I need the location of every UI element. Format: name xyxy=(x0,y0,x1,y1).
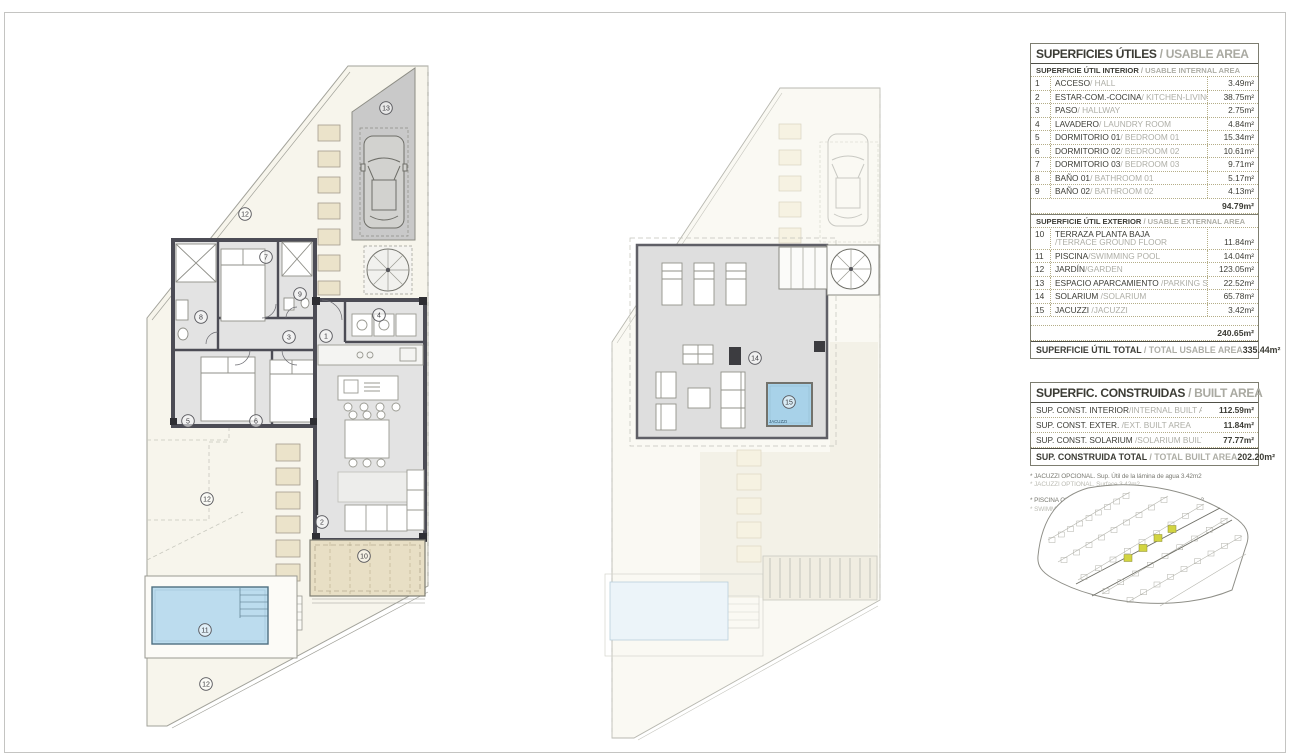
room-marker-number: 9 xyxy=(298,292,302,299)
table-row: 3PASO/ HALLWAY2.75m² xyxy=(1031,104,1258,118)
site-plot-highlighted xyxy=(1139,545,1147,552)
room-marker-number: 6 xyxy=(254,419,258,426)
swimming-pool xyxy=(145,576,297,658)
room-marker-number: 15 xyxy=(785,400,793,407)
site-location-map xyxy=(1028,484,1264,616)
room-marker-number: 3 xyxy=(287,335,291,342)
exterior-section-header: SUPERFICIE ÚTIL EXTERIOR / USABLE EXTERN… xyxy=(1031,214,1258,228)
room-marker-number: 8 xyxy=(199,315,203,322)
sun-loungers xyxy=(662,263,746,305)
table-row: 8BAÑO 01/ BATHROOM 015.17m² xyxy=(1031,172,1258,186)
footnote-line: * JACUZZI OPCIONAL. Sup. Útil de la lámi… xyxy=(1030,473,1259,481)
site-plot-highlighted xyxy=(1154,535,1162,542)
room-marker-number: 12 xyxy=(202,682,210,689)
table-row: SUP. CONST. EXTER. /EXT. BUILT AREA11.84… xyxy=(1031,418,1258,433)
room-marker-number: 12 xyxy=(241,212,249,219)
room-marker-number: 14 xyxy=(751,356,759,363)
spiral-stair-roof xyxy=(831,249,871,289)
built-total-value: 202.20m² xyxy=(1237,451,1279,463)
room-marker-number: 5 xyxy=(186,419,190,426)
table-row: 10TERRAZA PLANTA BAJA/TERRACE GROUND FLO… xyxy=(1031,228,1258,250)
room-marker-number: 13 xyxy=(382,106,390,113)
room-marker-number: 4 xyxy=(377,313,381,320)
room-marker-number: 11 xyxy=(201,628,208,635)
site-boundary xyxy=(1038,485,1248,604)
built-table-title: SUPERFIC. CONSTRUIDAS / BUILT AREA xyxy=(1031,383,1258,403)
table-row: 14SOLARIUM /SOLARIUM65.78m² xyxy=(1031,290,1258,304)
site-plot-highlighted xyxy=(1124,555,1132,562)
room-marker-number: 1 xyxy=(324,334,328,341)
table-row: 7DORMITORIO 03/ BEDROOM 039.71m² xyxy=(1031,158,1258,172)
interior-subtotal: 94.79m² xyxy=(1031,199,1258,214)
room-marker-number: 2 xyxy=(320,520,324,527)
table-row: 13ESPACIO APARCAMIENTO /PARKING SPACE22.… xyxy=(1031,277,1258,291)
table-row: 15JACUZZI /JACUZZI3.42m² xyxy=(1031,304,1258,318)
table-row: 12JARDÍN/GARDEN123.05m² xyxy=(1031,263,1258,277)
ground-floor-plan: 123456789101112121213 xyxy=(130,58,440,748)
room-marker-number: 7 xyxy=(264,255,268,262)
table-row: 5DORMITORIO 01/ BEDROOM 0115.34m² xyxy=(1031,131,1258,145)
pergola-roof xyxy=(763,556,877,600)
table-row: 6DORMITORIO 02/ BEDROOM 0210.61m² xyxy=(1031,145,1258,159)
solarium-floor-plan: JACUZZI 1415 xyxy=(595,80,890,745)
table-row: 2ESTAR-COM.-COCINA/ KITCHEN-LIVING38.75m… xyxy=(1031,91,1258,105)
table-row: 4LAVADERO/ LAUNDRY ROOM4.84m² xyxy=(1031,118,1258,132)
jacuzzi-label: JACUZZI xyxy=(769,419,787,424)
site-plot-highlighted xyxy=(1168,526,1176,533)
spiral-stair xyxy=(364,246,412,294)
table-row: 9BAÑO 02/ BATHROOM 024.13m² xyxy=(1031,185,1258,199)
terrace xyxy=(310,540,425,603)
table-row: SUP. CONST. INTERIOR/INTERNAL BUILT AREA… xyxy=(1031,403,1258,418)
exterior-subtotal: 240.65m² xyxy=(1031,326,1258,341)
room-marker-number: 10 xyxy=(360,554,368,561)
interior-section-header: SUPERFICIE ÚTIL INTERIOR / USABLE INTERN… xyxy=(1031,64,1258,77)
built-total-row: SUP. CONSTRUIDA TOTAL / TOTAL BUILT AREA… xyxy=(1031,448,1258,465)
table-row: 11PISCINA/SWIMMING POOL14.04m² xyxy=(1031,250,1258,264)
built-area-table: SUPERFIC. CONSTRUIDAS / BUILT AREA SUP. … xyxy=(1030,382,1259,466)
usable-area-table: SUPERFICIES ÚTILES / USABLE AREA SUPERFI… xyxy=(1030,43,1259,359)
area-tables: SUPERFICIES ÚTILES / USABLE AREA SUPERFI… xyxy=(1030,43,1259,514)
table-row: SUP. CONST. SOLARIUM /SOLARIUM BUILT ARE… xyxy=(1031,433,1258,448)
car-icon xyxy=(361,136,407,228)
usable-total-value: 335.44m² xyxy=(1243,344,1285,356)
room-marker-number: 12 xyxy=(203,497,211,504)
usable-table-title: SUPERFICIES ÚTILES / USABLE AREA xyxy=(1031,44,1258,64)
usable-total-row: SUPERFICIE ÚTIL TOTAL / TOTAL USABLE ARE… xyxy=(1031,341,1258,358)
table-row: 1ACCESO/ HALL3.49m² xyxy=(1031,77,1258,91)
spacer-row xyxy=(1031,317,1258,326)
